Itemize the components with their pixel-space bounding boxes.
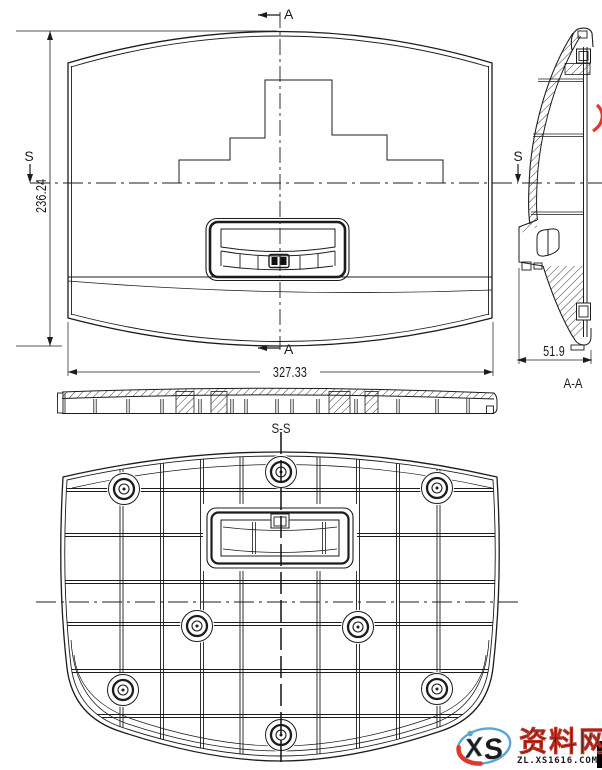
section-marker-a-top	[258, 12, 280, 18]
strip-hatch-block	[176, 392, 194, 414]
label-aa-view: A-A	[563, 376, 583, 391]
label-s-right: S	[513, 148, 522, 164]
boss-masks	[106, 455, 454, 752]
handle-recess-front	[206, 219, 349, 281]
screw-boss	[109, 474, 140, 505]
side-bottom-foot	[571, 345, 584, 350]
extension-lines	[16, 31, 277, 346]
screw-boss	[343, 612, 374, 643]
side-hatch-wedge	[565, 64, 590, 75]
strip-hatch-block	[211, 392, 227, 414]
arrowhead	[258, 12, 267, 18]
edge-red-mark	[593, 105, 602, 131]
engineering-drawing: 236.24 A A S S	[0, 0, 602, 770]
logo-letter-s: S	[482, 732, 506, 766]
strip-rib-dividers	[94, 399, 469, 413]
label-s-left: S	[24, 148, 33, 164]
front-view	[16, 12, 602, 351]
dim-text-front-height: 236.24	[32, 179, 49, 213]
screw-bosses	[108, 457, 453, 751]
pocket-hatch	[519, 220, 537, 234]
screw-boss	[182, 611, 213, 642]
screw-boss	[422, 674, 453, 705]
side-spine	[584, 47, 588, 337]
s-marker-right	[515, 164, 521, 183]
bottom-view	[36, 432, 520, 768]
recess-outer-frame	[206, 219, 349, 281]
label-a-top: A	[284, 6, 294, 22]
recess-thick-frame	[210, 222, 345, 277]
drawing-canvas: 236.24 A A S S	[0, 0, 602, 770]
strip-hatch-block	[329, 392, 350, 414]
dim-text-side-depth: 51.9	[543, 342, 565, 359]
watermark-site-name: 资料网	[519, 726, 602, 757]
latch-pad-right	[281, 257, 287, 265]
pocket-cavity	[537, 229, 559, 256]
side-pocket	[519, 220, 559, 270]
recess-window	[221, 229, 335, 252]
screw-boss	[108, 675, 139, 706]
arrowhead	[515, 174, 521, 183]
screw-boss	[422, 473, 453, 504]
dim-text-front-width: 327.33	[273, 363, 307, 380]
dim-front-height	[16, 31, 277, 346]
strip-hatch-block	[365, 392, 378, 414]
rib-grid-verticals	[120, 448, 440, 758]
watermark-site-url: ZL.XS1616.COM	[517, 756, 598, 766]
side-view-aa	[517, 28, 593, 364]
step-profile	[179, 80, 443, 183]
latch-pad-left	[272, 257, 278, 265]
label-a-bottom: A	[284, 341, 294, 357]
